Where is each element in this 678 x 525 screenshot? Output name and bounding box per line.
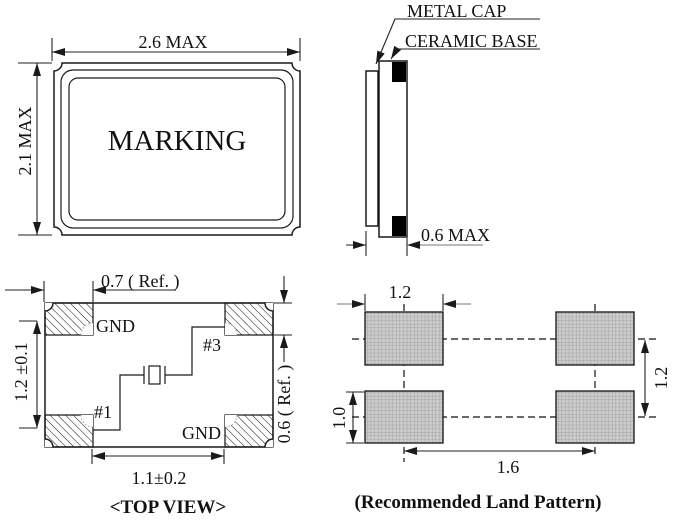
pad-label-pin3: #3 — [203, 335, 221, 355]
land-dim-row-pitch-label: 1.2 — [651, 367, 671, 390]
front-dim-width-label: 2.6 MAX — [138, 32, 207, 52]
land-dim-row-pitch: 1.2 — [645, 340, 671, 416]
top-dim-inner-span: 1.1±0.2 — [92, 449, 224, 488]
top-dim-pad-gap-label: 1.2 ±0.1 — [11, 342, 31, 401]
land-pad-bottom-right — [556, 391, 634, 443]
side-dim-thickness: 0.6 MAX — [346, 225, 490, 256]
top-view-caption: <TOP VIEW> — [110, 497, 227, 518]
side-view: METAL CAP CERAMIC BASE 0.6 MAX — [346, 1, 540, 256]
land-dim-col-pitch: 1.6 — [404, 451, 595, 477]
top-dim-pad-gap: 1.2 ±0.1 — [11, 321, 37, 428]
front-dim-height: 2.1 MAX — [15, 63, 52, 235]
land-pattern: 1.2 1.2 1.0 1.6 (Recommended Land Patter… — [329, 282, 671, 513]
top-view: GND #3 #1 GND 0.7 ( Ref. ) 1.2 ±0.1 0.6 … — [5, 271, 295, 518]
land-pattern-caption: (Recommended Land Pattern) — [355, 492, 602, 513]
top-dim-pad-width: 0.7 ( Ref. ) — [5, 271, 179, 302]
land-pad-top-left — [365, 312, 443, 365]
ceramic-base-label: CERAMIC BASE — [405, 31, 538, 51]
side-dim-thickness-label: 0.6 MAX — [421, 225, 490, 245]
top-dim-inner-span-label: 1.1±0.2 — [132, 468, 187, 488]
front-dim-height-label: 2.1 MAX — [15, 106, 35, 175]
metal-cap-body — [366, 71, 378, 226]
land-dim-pad-width-label: 1.2 — [389, 282, 412, 302]
ceramic-base-body — [379, 61, 407, 237]
pad-label-pin1: #1 — [94, 402, 112, 422]
ceramic-base-callout: CERAMIC BASE — [391, 31, 540, 59]
pad-label-gnd-bottom: GND — [182, 423, 221, 443]
top-dim-pad-height: 0.6 ( Ref. ) — [274, 276, 295, 443]
front-dim-width: 2.6 MAX — [52, 32, 300, 61]
marking-text: MARKING — [108, 125, 247, 157]
metal-cap-label: METAL CAP — [407, 1, 506, 21]
land-dim-pad-height-label: 1.0 — [329, 407, 349, 430]
front-view: MARKING 2.6 MAX 2.1 MAX — [15, 32, 300, 235]
terminal-top — [392, 62, 406, 82]
terminal-bottom — [392, 216, 406, 236]
pad-label-gnd-top: GND — [96, 316, 135, 336]
land-pad-top-right — [556, 312, 634, 365]
land-pad-bottom-left — [365, 391, 443, 443]
top-dim-pad-height-label: 0.6 ( Ref. ) — [274, 365, 295, 443]
land-dim-col-pitch-label: 1.6 — [497, 457, 520, 477]
top-dim-pad-width-label: 0.7 ( Ref. ) — [101, 271, 179, 292]
package-drawing: MARKING 2.6 MAX 2.1 MAX METAL CAP CERAMI… — [0, 0, 678, 525]
